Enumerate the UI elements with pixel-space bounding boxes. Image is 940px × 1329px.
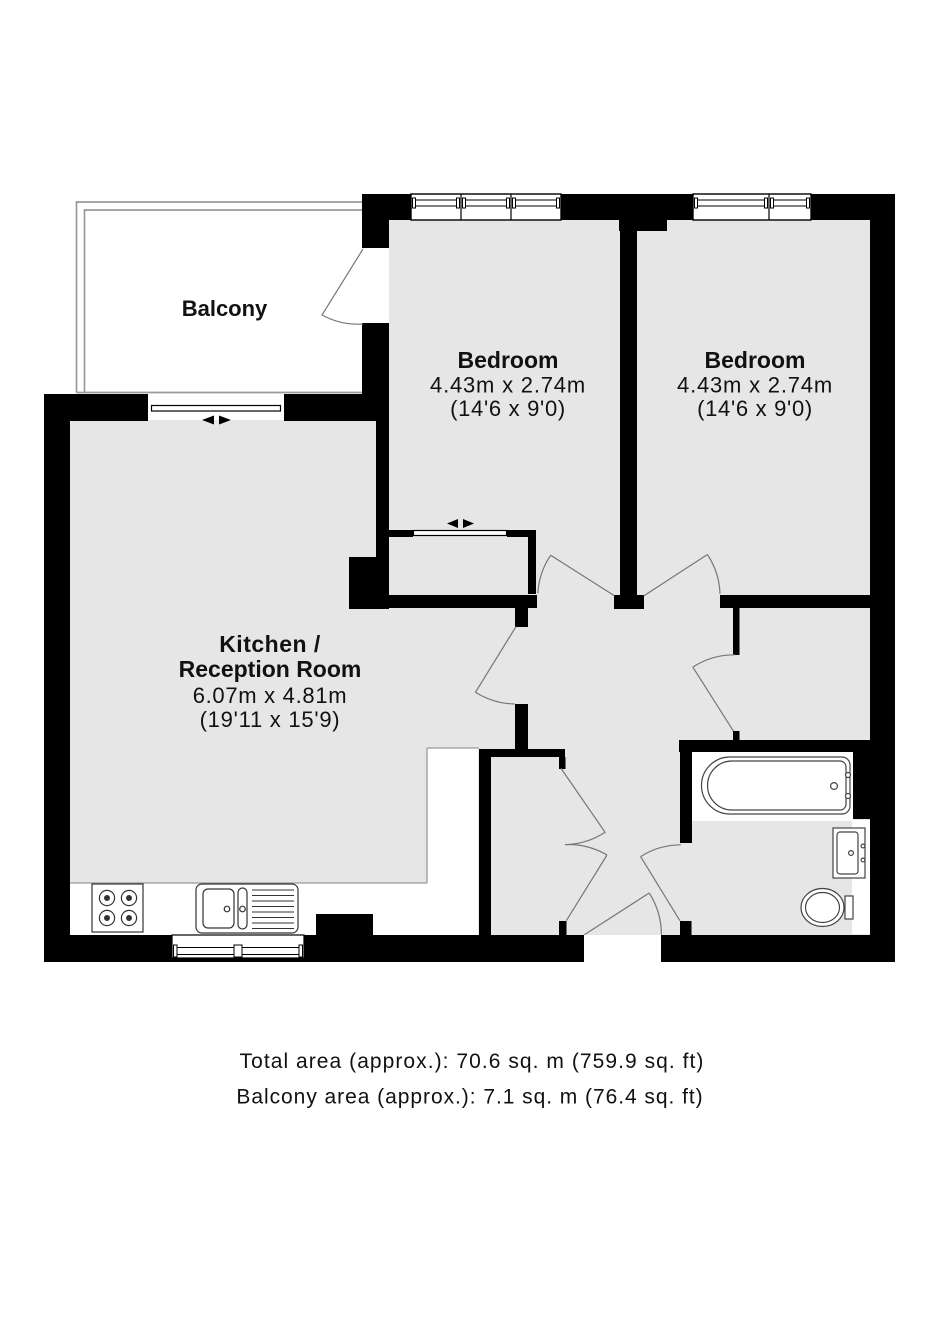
svg-text:4.43m x 2.74m: 4.43m x 2.74m (677, 373, 833, 398)
svg-text:Total area (approx.): 70.6 sq.: Total area (approx.): 70.6 sq. m (759.9 … (240, 1050, 705, 1073)
svg-text:4.43m x 2.74m: 4.43m x 2.74m (430, 373, 586, 398)
svg-text:Kitchen /: Kitchen / (219, 631, 321, 657)
svg-text:(19'11 x 15'9): (19'11 x 15'9) (200, 707, 341, 732)
svg-text:Bedroom: Bedroom (458, 347, 559, 373)
svg-text:6.07m x 4.81m: 6.07m x 4.81m (193, 683, 348, 708)
svg-text:Bedroom: Bedroom (705, 347, 806, 373)
svg-text:(14'6 x 9'0): (14'6 x 9'0) (450, 396, 566, 421)
svg-text:Balcony: Balcony (182, 296, 268, 321)
svg-text:Reception Room: Reception Room (179, 656, 362, 682)
svg-text:Balcony area (approx.): 7.1 sq: Balcony area (approx.): 7.1 sq. m (76.4 … (236, 1086, 703, 1109)
svg-text:(14'6 x 9'0): (14'6 x 9'0) (697, 396, 813, 421)
